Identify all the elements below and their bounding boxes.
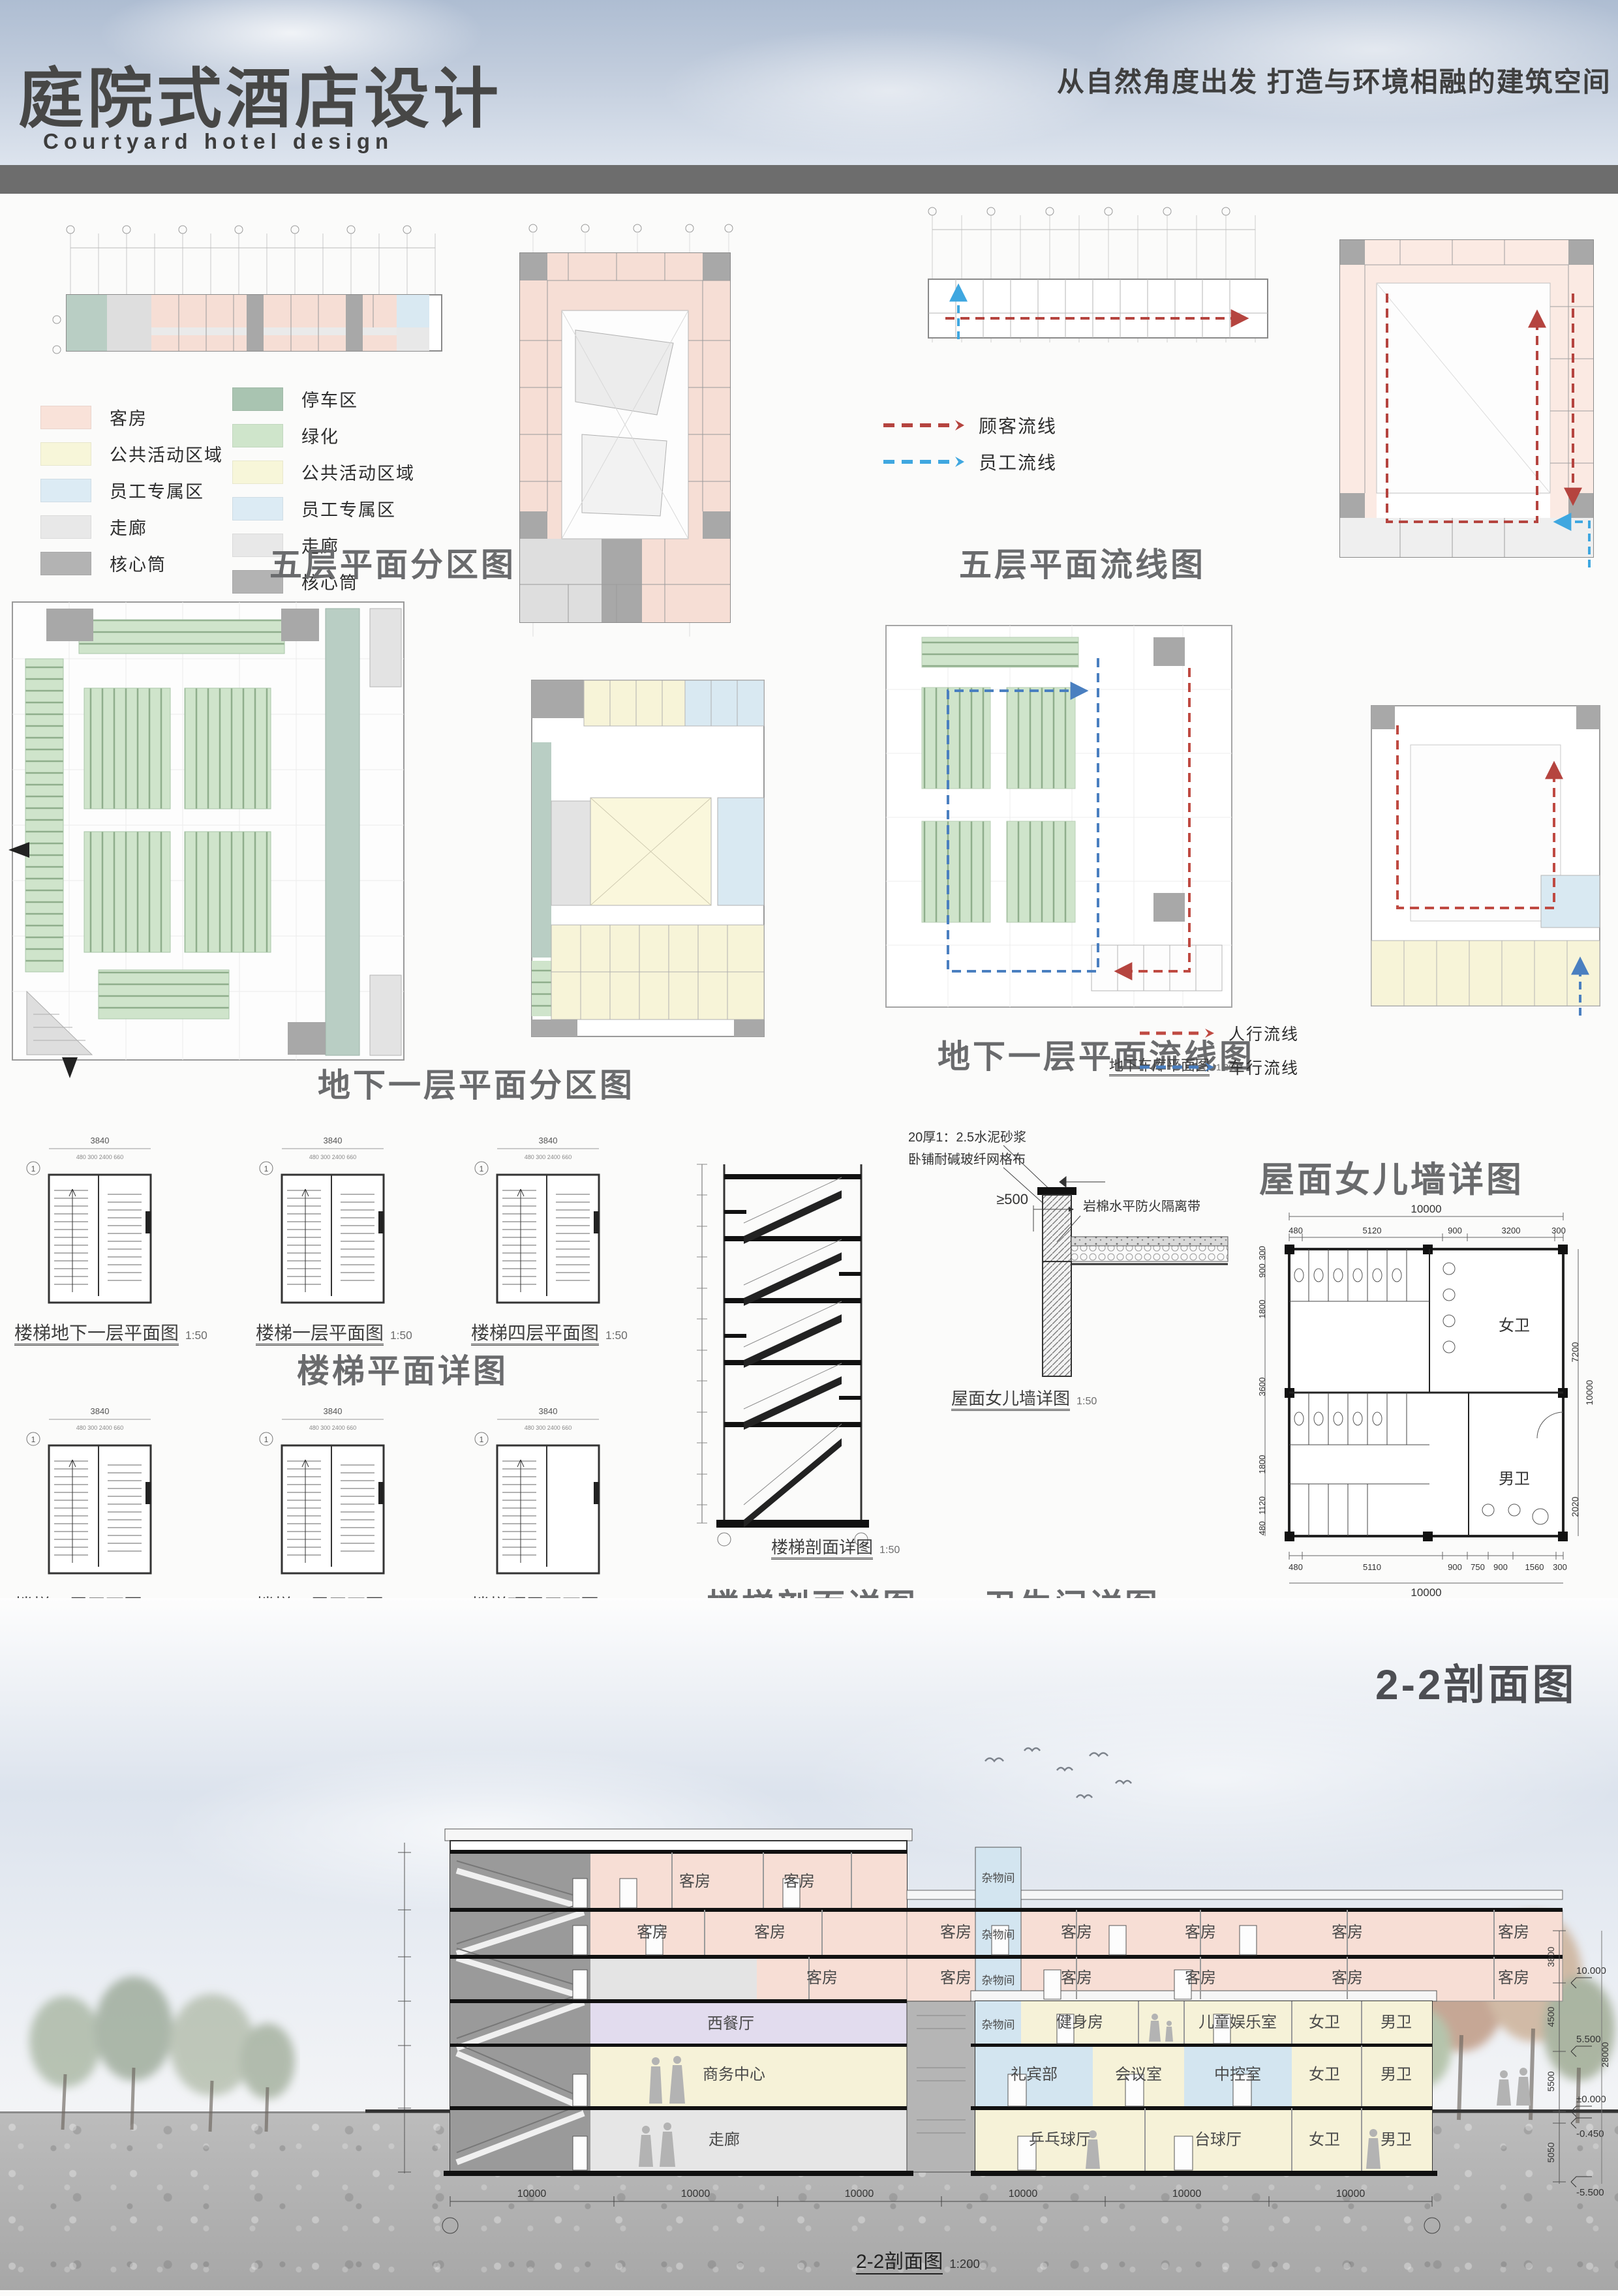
svg-text:5050: 5050	[1546, 2142, 1556, 2162]
pedestrian-flow-line-icon	[1138, 1028, 1217, 1038]
room-business-center: 商务中心	[703, 2066, 765, 2083]
svg-text:5500: 5500	[1546, 2071, 1556, 2091]
room-guest: 客房	[806, 1969, 838, 1987]
stair-plan-roof: 1 3840 480 300 2400 660	[465, 1402, 615, 1586]
caption-stair-b1: 楼梯地下一层平面图1:50	[14, 1319, 207, 1345]
room-storage: 杂物间	[982, 1974, 1015, 1987]
room-guest: 客房	[1185, 1924, 1216, 1941]
plan-floor5-courtyard-zoning	[504, 219, 746, 651]
parapet-note-mesh: 卧铺耐碱玻纤网格布	[908, 1152, 1026, 1167]
svg-text:3840: 3840	[91, 1406, 110, 1416]
label-b1-zoning: 地下一层平面分区图	[318, 1059, 635, 1106]
svg-text:28000: 28000	[1600, 2042, 1610, 2067]
legend-swatch	[232, 497, 283, 521]
legend-swatch	[40, 406, 91, 429]
caption-section-2-2: 2-2剖面图1:200	[856, 2245, 980, 2274]
room-guest: 客房	[784, 1873, 815, 1890]
svg-text:3800: 3800	[1546, 1946, 1556, 1967]
legend-item: 员工专属区	[40, 477, 223, 503]
header-divider-band	[0, 165, 1618, 194]
room-kids: 儿童娱乐室	[1198, 2014, 1277, 2031]
plan-basement-flow	[876, 606, 1247, 1027]
svg-text:300: 300	[1553, 1562, 1567, 1572]
svg-text:900: 900	[1448, 1562, 1462, 1572]
svg-text:1: 1	[31, 1164, 36, 1173]
svg-text:10000: 10000	[681, 2188, 710, 2199]
room-guest: 客房	[1185, 1969, 1216, 1987]
svg-text:3840: 3840	[91, 1136, 110, 1145]
svg-text:900: 900	[1493, 1562, 1508, 1572]
plan-basement-flow-right	[1358, 686, 1614, 1022]
svg-text:3600: 3600	[1257, 1378, 1267, 1397]
svg-text:480 300 2400 660: 480 300 2400 660	[525, 1425, 572, 1431]
legend-item: 核心筒	[40, 551, 223, 576]
legend-item: 走廊	[40, 514, 223, 539]
customer-flow-line-icon	[882, 419, 967, 431]
stair-plan-f1: 1 3840 480 300 2400 660	[249, 1132, 399, 1316]
room-corridor: 走廊	[709, 2131, 740, 2149]
caption-stair-f1: 楼梯一层平面图1:50	[256, 1319, 412, 1345]
svg-text:10000: 10000	[1009, 2188, 1038, 2199]
legend-item: 绿化	[232, 423, 415, 448]
svg-text:480 300 2400 660: 480 300 2400 660	[525, 1154, 572, 1160]
page-subtitle-en: Courtyard hotel design	[43, 129, 393, 154]
svg-text:5110: 5110	[1363, 1562, 1381, 1572]
room-meeting: 会议室	[1115, 2066, 1162, 2083]
room-female-wc: 女卫	[1499, 1317, 1530, 1335]
flow-legend-floor5: 顾客流线 员工流线	[882, 412, 1057, 485]
legend-swatch	[232, 387, 283, 411]
svg-text:-0.450: -0.450	[1576, 2128, 1604, 2139]
svg-text:3840: 3840	[539, 1406, 558, 1416]
label-parapet: 屋面女儿墙详图	[1259, 1151, 1524, 1202]
legend-swatch	[40, 552, 91, 575]
room-male-wc: 男卫	[1381, 2014, 1412, 2031]
plan-floor5-slab-flow	[913, 202, 1286, 369]
svg-text:3840: 3840	[324, 1136, 343, 1145]
plan-floor5-slab-zoning	[51, 222, 459, 370]
room-guest: 客房	[940, 1969, 971, 1987]
svg-text:1: 1	[31, 1435, 36, 1444]
label-floor5-flow: 五层平面流线图	[959, 539, 1206, 586]
plan-basement-parking-zoning	[7, 584, 410, 1081]
room-guest: 客房	[754, 1924, 786, 1941]
stair-plan-f2: 1 3840 480 300 2400 660	[16, 1402, 166, 1586]
legend-item: 停车区	[232, 386, 415, 412]
page-title: 庭院式酒店设计	[18, 46, 502, 140]
room-guest: 客房	[1332, 1924, 1363, 1941]
room-guest: 客房	[1061, 1969, 1092, 1987]
parapet-dim: ≥500	[996, 1191, 1028, 1207]
svg-text:1800: 1800	[1257, 1455, 1267, 1474]
room-guest: 客房	[1332, 1969, 1363, 1987]
room-gym: 健身房	[1056, 2014, 1103, 2031]
svg-text:1560: 1560	[1525, 1562, 1544, 1572]
svg-text:10000: 10000	[1172, 2188, 1202, 2199]
legend-floor5: 客房 公共活动区域 员工专属区 走廊 核心筒	[40, 404, 223, 587]
room-control: 中控室	[1214, 2066, 1261, 2083]
svg-text:10000: 10000	[1584, 1380, 1595, 1405]
staff-flow-line-icon	[882, 456, 967, 468]
svg-text:-5.500: -5.500	[1576, 2187, 1604, 2198]
room-guest: 客房	[1061, 1924, 1092, 1941]
room-guest: 客房	[637, 1924, 668, 1941]
room-storage: 杂物间	[982, 2019, 1015, 2031]
room-guest: 客房	[1498, 1969, 1529, 1987]
flow-legend-item: 车行流线	[1138, 1055, 1299, 1079]
svg-text:480: 480	[1289, 1226, 1303, 1235]
room-billiards: 台球厅	[1195, 2131, 1242, 2149]
svg-text:300: 300	[1257, 1246, 1267, 1260]
plan-basement-zoning-rooms	[519, 664, 778, 1055]
svg-text:10000: 10000	[845, 2188, 874, 2199]
room-storage: 杂物间	[982, 1872, 1015, 1884]
svg-text:10000: 10000	[1411, 1203, 1441, 1215]
svg-text:480: 480	[1289, 1562, 1303, 1572]
caption-stair-section: 楼梯剖面详图1:50	[771, 1534, 900, 1558]
label-section-2-2: 2-2剖面图	[1375, 1652, 1577, 1712]
room-storage: 杂物间	[982, 1929, 1015, 1941]
svg-text:10000: 10000	[1411, 1586, 1441, 1599]
stair-section-detail	[679, 1119, 874, 1549]
section-2-2-drawing: 客房 客房 客房 客房 客房 客房 客房 客房 客房 客房 客房 客房 客房 客…	[365, 1774, 1618, 2296]
svg-text:10000: 10000	[1336, 2188, 1366, 2199]
label-floor5-zoning: 五层平面分区图	[269, 539, 516, 586]
legend-item: 公共活动区域	[40, 441, 223, 466]
svg-text:1120: 1120	[1257, 1496, 1267, 1515]
vehicle-flow-line-icon	[1138, 1062, 1217, 1072]
plan-floor5-courtyard-flow	[1322, 215, 1611, 581]
svg-text:5.500: 5.500	[1576, 2034, 1601, 2045]
caption-stair-f4: 楼梯四层平面图1:50	[471, 1319, 628, 1345]
svg-text:5120: 5120	[1363, 1226, 1382, 1235]
stair-plan-f3: 1 3840 480 300 2400 660	[249, 1402, 399, 1586]
svg-text:480 300 2400 660: 480 300 2400 660	[309, 1425, 357, 1431]
parapet-note-rockwool: 岩棉水平防火隔离带	[1083, 1199, 1200, 1214]
legend-swatch	[232, 461, 283, 484]
svg-text:3200: 3200	[1502, 1226, 1521, 1235]
svg-text:1: 1	[480, 1435, 484, 1444]
room-male-wc: 男卫	[1499, 1470, 1530, 1488]
room-female-wc: 女卫	[1309, 2131, 1340, 2149]
svg-text:7200: 7200	[1570, 1342, 1580, 1362]
parapet-note-mortar: 20厚1：2.5水泥砂浆	[908, 1130, 1026, 1145]
room-concierge: 礼宾部	[1011, 2066, 1058, 2083]
stair-plan-f4: 1 3840 480 300 2400 660	[465, 1132, 615, 1316]
flow-legend-item: 人行流线	[1138, 1021, 1299, 1045]
svg-text:1: 1	[264, 1435, 269, 1444]
stair-plan-b1: 1 3840 480 300 2400 660	[16, 1132, 166, 1316]
legend-item: 员工专属区	[232, 496, 415, 521]
svg-text:900: 900	[1257, 1263, 1267, 1278]
trees-left	[20, 1963, 300, 2152]
svg-text:3840: 3840	[539, 1136, 558, 1145]
legend-item: 公共活动区域	[232, 459, 415, 485]
toilet-plan-drawing: 10000 480 5120 900 3200 300 女卫 男卫 480 51…	[1234, 1197, 1599, 1608]
svg-text:480 300 2400 660: 480 300 2400 660	[76, 1425, 124, 1431]
svg-text:1: 1	[264, 1164, 269, 1173]
page-tagline: 从自然角度出发 打造与环境相融的建筑空间	[1057, 60, 1605, 100]
room-pingpong: 乒乓球厅	[1029, 2131, 1091, 2149]
svg-text:1: 1	[480, 1164, 484, 1173]
svg-text:900: 900	[1448, 1226, 1462, 1235]
flow-legend-item: 员工流线	[882, 449, 1057, 475]
svg-text:2020: 2020	[1570, 1496, 1580, 1517]
legend-item: 客房	[40, 404, 223, 430]
svg-text:10000: 10000	[517, 2188, 547, 2199]
svg-text:480 300 2400 660: 480 300 2400 660	[76, 1154, 124, 1160]
svg-text:300: 300	[1551, 1226, 1566, 1235]
room-guest: 客房	[940, 1924, 971, 1941]
parapet-detail-drawing: 20厚1：2.5水泥砂浆 卧铺耐碱玻纤网格布 ≥500 岩棉水平防火隔离带	[906, 1125, 1232, 1398]
flow-legend-item: 顾客流线	[882, 412, 1057, 438]
room-west-restaurant: 西餐厅	[707, 2015, 754, 2032]
room-guest: 客房	[679, 1873, 710, 1890]
svg-text:1800: 1800	[1257, 1300, 1267, 1319]
flow-legend-basement: 人行流线 车行流线	[1138, 1021, 1299, 1089]
caption-parapet: 屋面女儿墙详图1:50	[951, 1385, 1097, 1410]
room-male-wc: 男卫	[1381, 2066, 1412, 2083]
legend-swatch	[40, 442, 91, 466]
legend-swatch	[232, 424, 283, 447]
svg-text:3840: 3840	[324, 1406, 343, 1416]
legend-swatch	[40, 515, 91, 539]
svg-text:480 300 2400 660: 480 300 2400 660	[309, 1154, 357, 1160]
legend-swatch	[40, 479, 91, 502]
room-guest: 客房	[1498, 1924, 1529, 1941]
room-male-wc: 男卫	[1381, 2131, 1412, 2149]
label-stair-plans: 楼梯平面详图	[297, 1345, 508, 1392]
svg-text:750: 750	[1471, 1562, 1485, 1572]
room-female-wc: 女卫	[1309, 2066, 1340, 2083]
svg-text:4500: 4500	[1546, 2006, 1556, 2027]
svg-text:480: 480	[1257, 1521, 1267, 1535]
room-female-wc: 女卫	[1309, 2014, 1340, 2031]
